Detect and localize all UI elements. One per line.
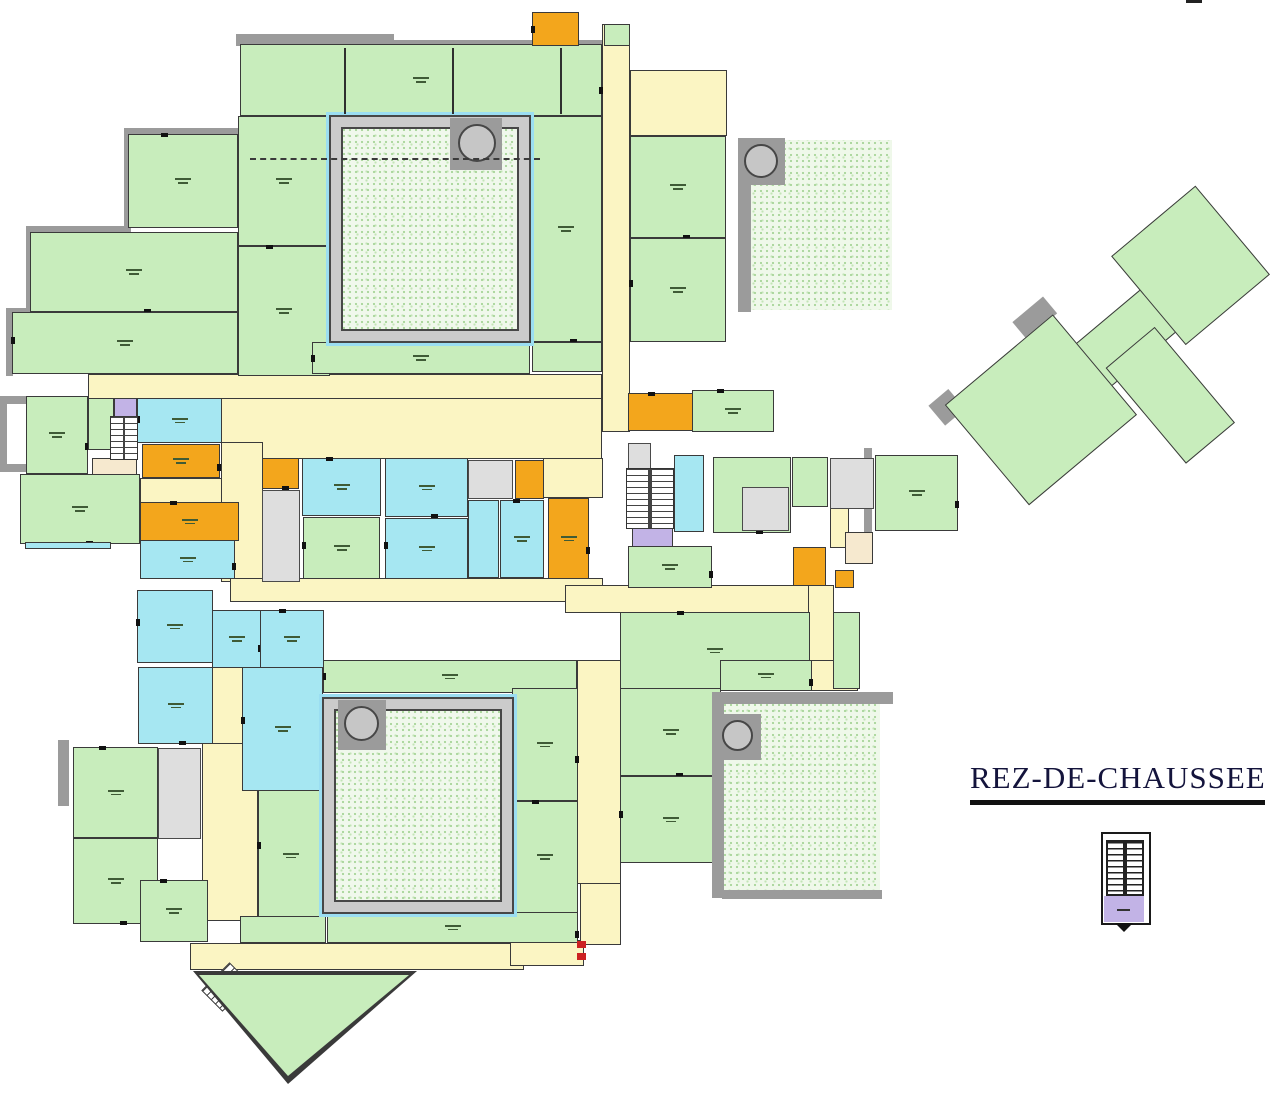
room: [792, 457, 828, 507]
garden-frame: [722, 890, 882, 899]
elevator: [632, 528, 673, 547]
room-label-mark: [168, 703, 184, 705]
corridor: [580, 883, 621, 945]
wet-room: [138, 667, 213, 744]
column-line: [452, 48, 454, 114]
door-mark: [619, 811, 623, 818]
room-label-mark: [337, 488, 347, 490]
room: [92, 458, 137, 475]
door-mark: [232, 563, 236, 570]
door-mark: [629, 280, 633, 287]
room: [630, 136, 726, 238]
door-mark: [575, 931, 579, 938]
room-label-mark: [276, 178, 292, 180]
room-label-mark: [442, 674, 458, 676]
plan-title: REZ-DE-CHAUSSEE: [970, 760, 1265, 796]
door-mark: [648, 392, 655, 396]
room-label-mark: [422, 550, 432, 552]
room-label-mark: [416, 359, 426, 361]
room-label-mark: [182, 519, 198, 521]
exit-mark: [577, 941, 586, 948]
room-label-mark: [278, 730, 288, 732]
room-label-mark: [707, 648, 723, 650]
room-label-mark: [537, 854, 553, 856]
room-label-mark: [279, 182, 289, 184]
exit-mark: [577, 953, 586, 960]
room: [530, 116, 602, 342]
room-label-mark: [419, 485, 435, 487]
door-mark: [709, 571, 713, 578]
column-line: [560, 48, 562, 114]
corridor: [212, 662, 243, 744]
room: [312, 342, 530, 374]
room: [303, 517, 380, 579]
room-label-mark: [334, 484, 350, 486]
door-mark: [136, 619, 140, 626]
door-mark: [99, 746, 106, 750]
stair-room: [262, 458, 299, 489]
column-line: [344, 48, 346, 114]
tree-circle: [344, 706, 379, 741]
door-mark: [599, 87, 603, 94]
room: [12, 312, 238, 374]
room-label-mark: [416, 81, 426, 83]
door-mark: [279, 609, 286, 613]
sanitary: [302, 458, 381, 516]
room-label-mark: [666, 821, 676, 823]
door-mark: [160, 879, 167, 883]
room: [128, 134, 238, 228]
door-mark: [241, 717, 245, 724]
wet-room: [137, 590, 213, 663]
door-mark: [384, 542, 388, 549]
stair-room: [835, 570, 854, 588]
room: [692, 390, 774, 432]
corridor: [140, 478, 222, 503]
door-mark: [586, 547, 590, 554]
wet-room: [260, 610, 324, 668]
room-label-mark: [665, 568, 675, 570]
staircase: [626, 468, 674, 529]
room: [620, 776, 721, 863]
room: [238, 116, 330, 246]
door-mark: [326, 457, 333, 461]
entrance-wall: [0, 396, 7, 472]
tree-circle: [458, 124, 496, 162]
room-label-mark: [175, 178, 191, 180]
room: [258, 790, 323, 921]
room-label-mark: [117, 340, 133, 342]
shaft: [742, 487, 789, 531]
room-label-mark: [337, 549, 347, 551]
room-label-mark: [662, 564, 678, 566]
door-mark: [531, 26, 535, 33]
elevator: [114, 398, 137, 417]
door-mark: [311, 355, 315, 362]
room-label-mark: [666, 733, 676, 735]
shaft: [830, 458, 874, 509]
room: [620, 688, 721, 776]
corridor: [577, 660, 621, 884]
room-label-mark: [673, 188, 683, 190]
wet-room: [242, 667, 323, 791]
annex-building-plan: [831, 107, 1280, 644]
room-label-mark: [176, 462, 186, 464]
room-label-mark: [170, 628, 180, 630]
room-label-mark: [761, 677, 771, 679]
door-mark: [179, 741, 186, 745]
stair-room: [142, 444, 220, 478]
room-label-mark: [276, 308, 292, 310]
door-mark: [170, 501, 177, 505]
room-label-mark: [419, 546, 435, 548]
window-strip: [25, 542, 111, 549]
title-block: REZ-DE-CHAUSSEE: [970, 760, 1265, 805]
partition-line: [250, 158, 540, 160]
door-mark: [120, 921, 127, 925]
garden-frame: [713, 692, 893, 704]
room-label-mark: [129, 273, 139, 275]
room-label-mark: [710, 652, 720, 654]
room-label-mark: [537, 742, 553, 744]
stair-legend-icon: [1101, 832, 1151, 925]
room-label-mark: [72, 506, 88, 508]
door-mark: [575, 756, 579, 763]
room-label-mark: [540, 746, 550, 748]
room-label-mark: [663, 729, 679, 731]
room-label-mark: [180, 557, 196, 559]
room-label-mark: [564, 540, 574, 542]
staircase: [110, 416, 138, 460]
stair-room: [532, 12, 579, 46]
room-label-mark: [561, 536, 577, 538]
corridor: [88, 374, 602, 399]
shaft: [262, 490, 300, 582]
wet-room: [674, 455, 704, 532]
door-mark: [161, 133, 168, 137]
outer-wall: [58, 740, 69, 806]
room-label-mark: [517, 540, 527, 542]
corridor: [510, 940, 584, 966]
room-label-mark: [279, 312, 289, 314]
room-label-mark: [758, 673, 774, 675]
room-label-mark: [670, 287, 686, 289]
room: [240, 916, 326, 943]
floor-plan-canvas: REZ-DE-CHAUSSEE: [0, 0, 1280, 1095]
shaft: [628, 443, 651, 469]
room: [628, 546, 712, 588]
stair-room: [628, 393, 693, 431]
room-label-mark: [183, 561, 193, 563]
shaft: [468, 460, 513, 499]
stair-room: [140, 502, 239, 541]
tree-circle: [744, 144, 778, 178]
room: [604, 24, 630, 46]
room-label-mark: [169, 912, 179, 914]
door-mark: [266, 245, 273, 249]
room: [630, 238, 726, 342]
door-mark: [217, 464, 221, 471]
room-label-mark: [663, 817, 679, 819]
sanitary: [385, 518, 468, 579]
door-mark: [257, 842, 261, 849]
room-label-mark: [445, 925, 461, 927]
triangle-room: [199, 975, 409, 1076]
door-mark: [532, 800, 539, 804]
room-label-mark: [232, 640, 242, 642]
door-mark: [717, 389, 724, 393]
door-mark: [302, 542, 306, 549]
stair-room: [793, 547, 826, 586]
room-label-mark: [126, 269, 142, 271]
vestibule: [221, 398, 602, 459]
room-label-mark: [422, 489, 432, 491]
room-label-mark: [275, 726, 291, 728]
corridor: [565, 585, 810, 613]
room-label-mark: [173, 458, 189, 460]
room-label-mark: [111, 794, 121, 796]
room-label-mark: [284, 636, 300, 638]
room: [30, 232, 238, 312]
room-label-mark: [561, 230, 571, 232]
corridor: [602, 24, 630, 432]
room-label-mark: [108, 790, 124, 792]
salle: [20, 474, 140, 544]
room-label-mark: [673, 291, 683, 293]
room: [720, 660, 812, 691]
room-label-mark: [111, 882, 121, 884]
room-label-mark: [167, 624, 183, 626]
room-label-mark: [229, 636, 245, 638]
room-label-mark: [75, 510, 85, 512]
room: [327, 912, 578, 943]
room-label-mark: [445, 678, 455, 680]
room-label-mark: [728, 412, 738, 414]
room-label-mark: [286, 857, 296, 859]
stair-room: [548, 498, 589, 579]
room-label-mark: [52, 436, 62, 438]
room-label-mark: [283, 853, 299, 855]
stair-treads-icon: [1106, 840, 1144, 896]
wet-room: [140, 540, 235, 579]
room: [512, 688, 578, 801]
hall: [240, 44, 602, 116]
door-mark: [809, 679, 813, 686]
stair-label-mark: [1117, 909, 1130, 911]
room: [73, 747, 158, 838]
sanitary: [385, 458, 468, 517]
room-label-mark: [175, 422, 185, 424]
door-mark: [677, 611, 684, 615]
room-label-mark: [558, 226, 574, 228]
room: [845, 532, 873, 564]
room-label-mark: [912, 494, 922, 496]
sanitary: [468, 500, 499, 578]
stair-room: [515, 460, 544, 499]
room-label-mark: [172, 418, 188, 420]
room-label-mark: [287, 640, 297, 642]
room-label-mark: [185, 523, 195, 525]
room: [833, 612, 860, 689]
room-label-mark: [178, 182, 188, 184]
room: [512, 801, 578, 913]
room-label-mark: [670, 184, 686, 186]
room-label-mark: [49, 432, 65, 434]
room-label-mark: [540, 858, 550, 860]
door-mark: [11, 337, 15, 344]
room-label-mark: [166, 908, 182, 910]
room: [630, 70, 727, 136]
room-label-mark: [448, 929, 458, 931]
room-label-mark: [120, 344, 130, 346]
room-label-mark: [108, 878, 124, 880]
room-label-mark: [413, 355, 429, 357]
room: [140, 880, 208, 942]
room-label-mark: [514, 536, 530, 538]
stair-direction-arrow-icon: [1115, 923, 1133, 932]
room-label-mark: [413, 77, 429, 79]
door-mark: [513, 499, 520, 503]
title-underline: [970, 800, 1265, 805]
room: [532, 342, 602, 372]
wet-room: [212, 610, 261, 668]
shaft: [158, 748, 201, 839]
wet-room: [137, 398, 222, 443]
room-label-mark: [171, 707, 181, 709]
corridor: [543, 458, 603, 498]
room-label-mark: [725, 408, 741, 410]
page-edge-mark: [1186, 0, 1202, 3]
corridor: [190, 943, 524, 970]
room: [26, 396, 88, 474]
tree-circle: [722, 720, 753, 751]
sanitary: [500, 500, 544, 578]
room-label-mark: [334, 545, 350, 547]
